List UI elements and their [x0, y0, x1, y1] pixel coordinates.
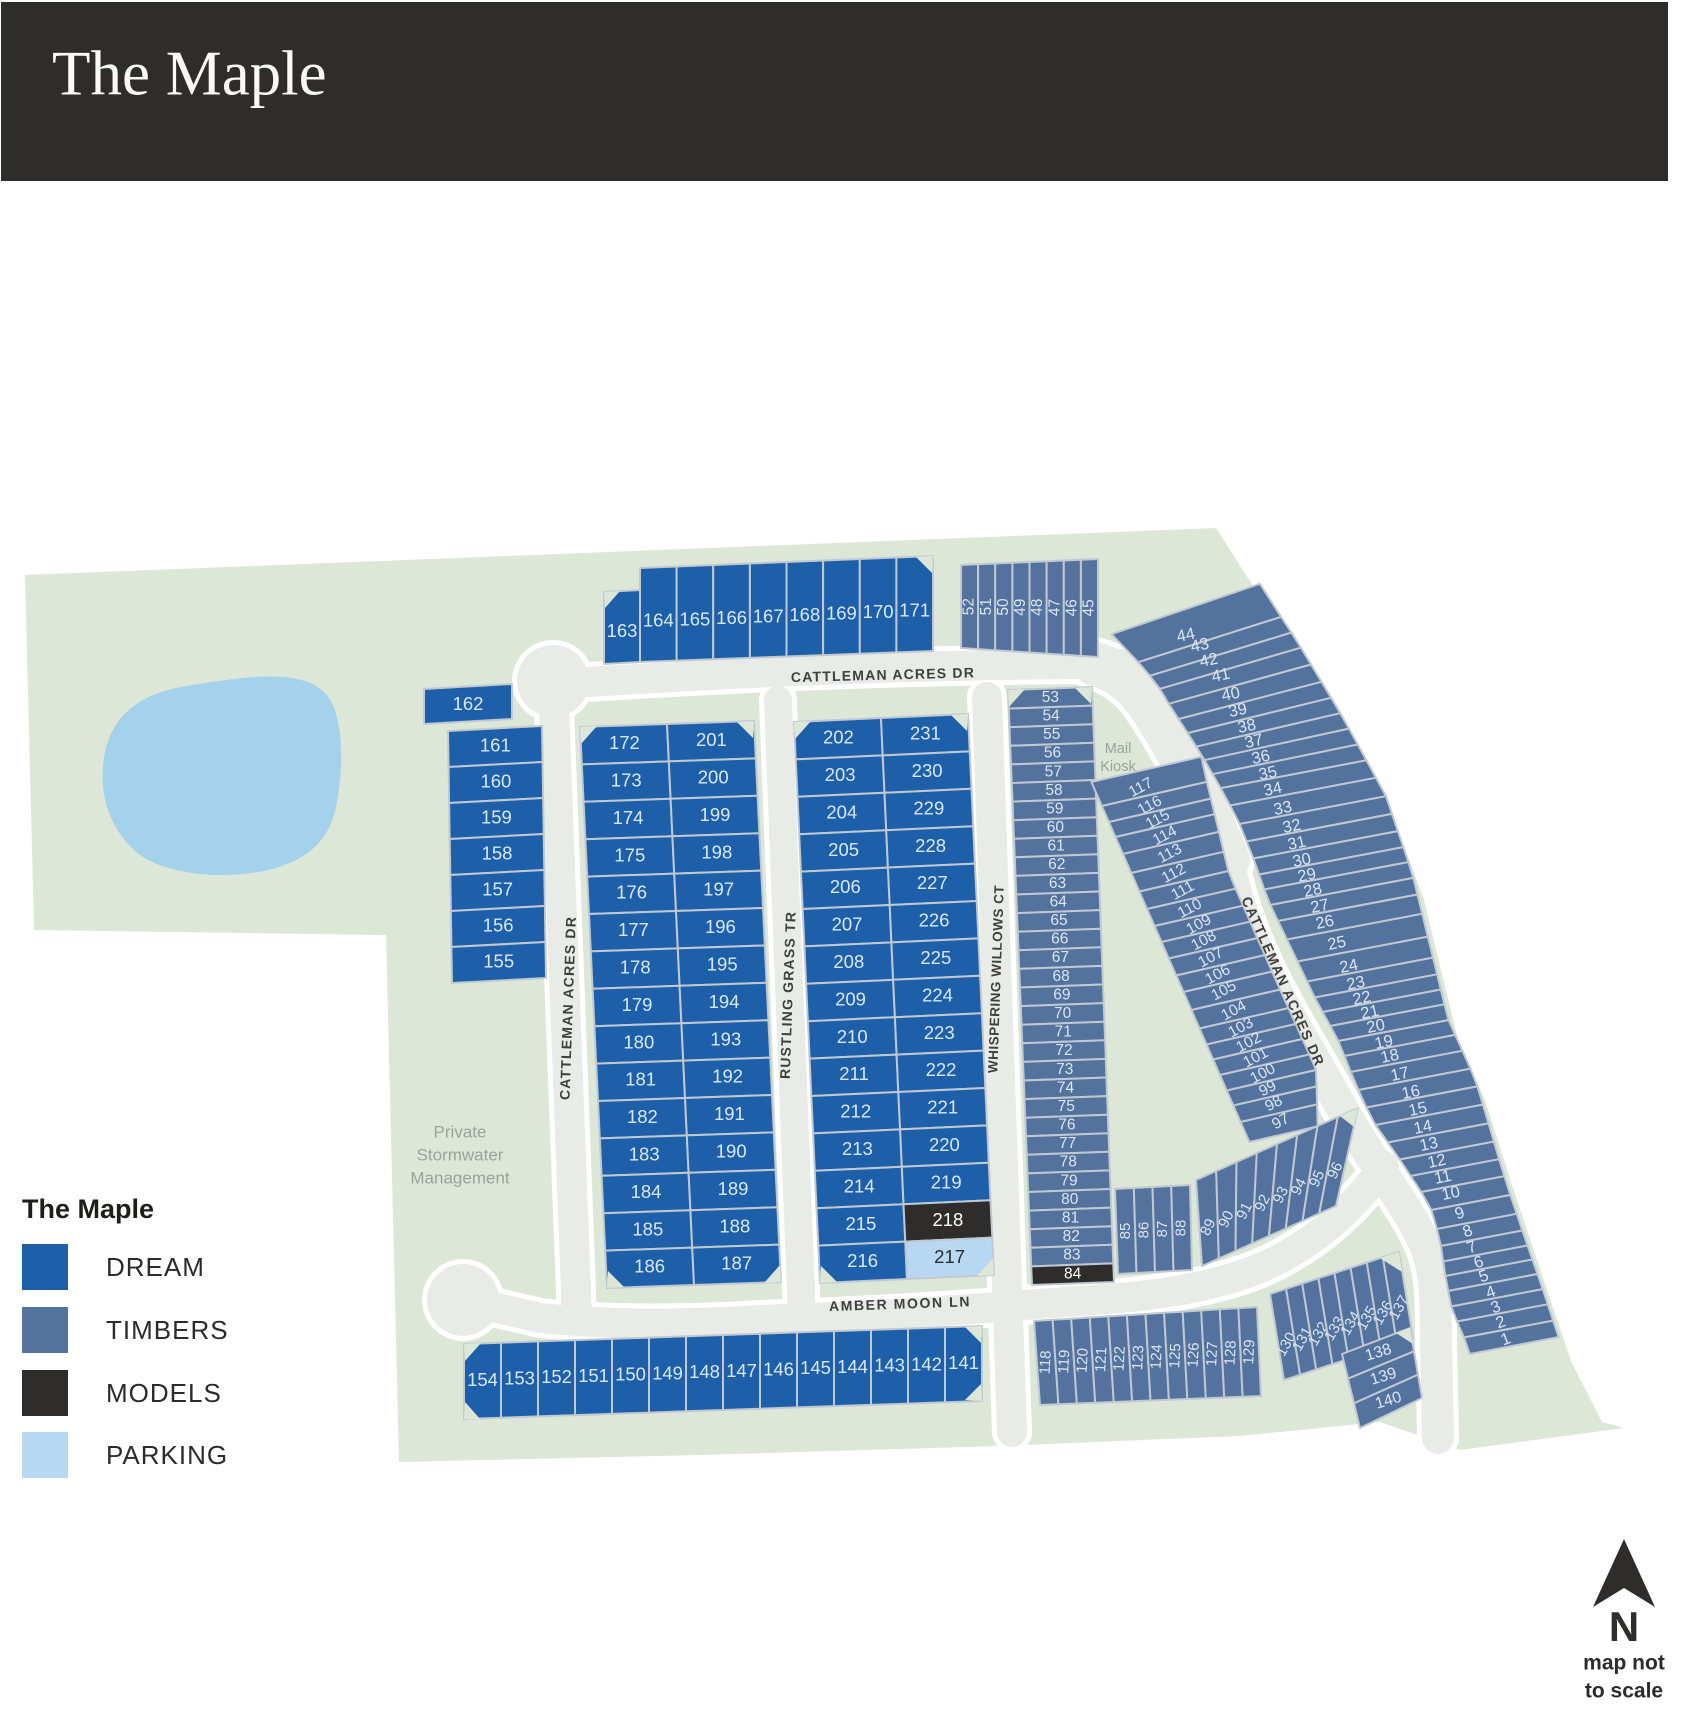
svg-text:195: 195 [707, 953, 738, 974]
svg-text:173: 173 [611, 769, 642, 790]
svg-text:196: 196 [705, 916, 736, 937]
svg-text:57: 57 [1045, 763, 1062, 780]
svg-text:214: 214 [844, 1175, 875, 1196]
svg-text:231: 231 [910, 723, 941, 744]
svg-text:171: 171 [899, 600, 930, 621]
svg-text:125: 125 [1166, 1343, 1184, 1369]
svg-text:78: 78 [1060, 1154, 1077, 1171]
svg-text:127: 127 [1203, 1341, 1221, 1367]
svg-text:45: 45 [1080, 599, 1097, 616]
svg-text:188: 188 [719, 1215, 750, 1236]
svg-text:58: 58 [1045, 782, 1062, 799]
svg-text:176: 176 [616, 882, 647, 903]
svg-text:178: 178 [620, 956, 651, 977]
svg-text:199: 199 [700, 804, 731, 825]
svg-text:75: 75 [1058, 1098, 1075, 1115]
svg-text:Management: Management [410, 1168, 510, 1187]
svg-text:212: 212 [840, 1101, 871, 1122]
svg-text:205: 205 [828, 839, 859, 860]
svg-text:DREAM: DREAM [106, 1252, 205, 1282]
svg-text:49: 49 [1012, 599, 1029, 616]
svg-text:80: 80 [1061, 1191, 1079, 1208]
svg-text:52: 52 [961, 598, 978, 615]
svg-text:47: 47 [1046, 599, 1063, 616]
svg-text:to scale: to scale [1585, 1680, 1663, 1703]
svg-text:177: 177 [618, 919, 649, 940]
svg-text:182: 182 [627, 1106, 658, 1127]
svg-text:The Maple: The Maple [22, 1194, 154, 1224]
svg-text:129: 129 [1240, 1339, 1258, 1365]
svg-text:86: 86 [1135, 1222, 1152, 1239]
svg-text:193: 193 [710, 1028, 741, 1049]
svg-text:25: 25 [1326, 933, 1348, 954]
svg-text:72: 72 [1055, 1042, 1072, 1059]
svg-text:122: 122 [1111, 1346, 1129, 1372]
svg-text:70: 70 [1054, 1005, 1072, 1022]
svg-text:69: 69 [1053, 986, 1070, 1003]
svg-text:208: 208 [833, 951, 864, 972]
svg-text:189: 189 [718, 1178, 749, 1199]
svg-text:204: 204 [826, 801, 857, 822]
svg-text:118: 118 [1037, 1350, 1055, 1375]
svg-text:179: 179 [622, 994, 653, 1015]
svg-text:203: 203 [825, 764, 856, 785]
svg-text:197: 197 [703, 879, 734, 900]
svg-text:Stormwater: Stormwater [417, 1145, 504, 1164]
svg-text:84: 84 [1064, 1265, 1082, 1282]
svg-text:222: 222 [926, 1059, 957, 1080]
svg-text:map not: map not [1583, 1652, 1665, 1675]
svg-text:184: 184 [631, 1181, 662, 1202]
svg-text:83: 83 [1063, 1247, 1080, 1264]
svg-text:77: 77 [1059, 1135, 1076, 1152]
svg-text:209: 209 [835, 988, 866, 1009]
svg-text:201: 201 [696, 729, 727, 750]
svg-text:143: 143 [874, 1355, 905, 1376]
svg-text:226: 226 [919, 910, 950, 931]
svg-text:65: 65 [1050, 912, 1067, 929]
svg-text:149: 149 [652, 1362, 683, 1383]
svg-text:198: 198 [701, 841, 732, 862]
svg-text:67: 67 [1052, 949, 1069, 966]
svg-text:162: 162 [453, 693, 484, 714]
svg-text:156: 156 [483, 914, 514, 935]
svg-text:10: 10 [1440, 1183, 1462, 1204]
svg-text:168: 168 [789, 604, 820, 625]
svg-text:183: 183 [629, 1143, 660, 1164]
svg-text:187: 187 [721, 1253, 752, 1274]
svg-text:218: 218 [932, 1209, 963, 1230]
svg-text:161: 161 [480, 734, 511, 755]
svg-text:141: 141 [948, 1352, 979, 1373]
svg-text:145: 145 [800, 1357, 831, 1378]
svg-text:221: 221 [927, 1097, 958, 1118]
svg-text:172: 172 [609, 732, 640, 753]
svg-text:185: 185 [632, 1218, 663, 1239]
svg-text:163: 163 [607, 620, 638, 641]
svg-text:87: 87 [1154, 1221, 1171, 1238]
svg-text:228: 228 [915, 835, 946, 856]
svg-text:158: 158 [482, 842, 513, 863]
svg-text:174: 174 [613, 807, 644, 828]
svg-text:217: 217 [934, 1246, 965, 1267]
svg-text:51: 51 [978, 598, 995, 615]
svg-text:148: 148 [689, 1361, 720, 1382]
svg-text:50: 50 [995, 598, 1012, 616]
svg-text:215: 215 [845, 1213, 876, 1234]
svg-text:230: 230 [912, 760, 943, 781]
svg-text:74: 74 [1057, 1079, 1075, 1096]
svg-text:128: 128 [1222, 1340, 1240, 1366]
svg-text:170: 170 [863, 601, 894, 622]
svg-text:180: 180 [623, 1031, 654, 1052]
svg-text:73: 73 [1056, 1061, 1073, 1078]
svg-text:164: 164 [643, 610, 674, 631]
svg-text:190: 190 [716, 1140, 747, 1161]
svg-text:160: 160 [480, 770, 511, 791]
svg-text:Private: Private [434, 1122, 487, 1141]
svg-text:167: 167 [753, 605, 784, 626]
svg-text:213: 213 [842, 1138, 873, 1159]
svg-text:76: 76 [1058, 1117, 1075, 1134]
svg-text:56: 56 [1044, 745, 1061, 762]
svg-text:85: 85 [1117, 1223, 1134, 1240]
svg-text:MODELS: MODELS [106, 1378, 222, 1408]
svg-text:192: 192 [712, 1066, 743, 1087]
svg-text:N: N [1609, 1603, 1639, 1650]
svg-text:120: 120 [1074, 1348, 1092, 1374]
svg-text:64: 64 [1050, 893, 1068, 910]
svg-text:46: 46 [1063, 599, 1080, 616]
svg-text:224: 224 [922, 984, 953, 1005]
svg-text:124: 124 [1148, 1344, 1166, 1370]
svg-text:169: 169 [826, 603, 857, 624]
svg-text:154: 154 [467, 1369, 498, 1390]
svg-text:227: 227 [917, 872, 948, 893]
svg-text:200: 200 [698, 766, 729, 787]
svg-text:142: 142 [911, 1353, 942, 1374]
svg-text:71: 71 [1055, 1024, 1072, 1041]
svg-text:41: 41 [1210, 665, 1232, 686]
svg-text:157: 157 [482, 878, 513, 899]
svg-text:175: 175 [614, 844, 645, 865]
svg-text:61: 61 [1047, 838, 1064, 855]
svg-text:152: 152 [541, 1366, 572, 1387]
svg-text:181: 181 [625, 1069, 656, 1090]
svg-text:81: 81 [1062, 1209, 1079, 1226]
svg-text:The Maple: The Maple [52, 38, 327, 108]
svg-text:54: 54 [1042, 707, 1060, 724]
svg-text:55: 55 [1043, 726, 1060, 743]
svg-text:211: 211 [839, 1063, 869, 1084]
svg-text:151: 151 [578, 1365, 609, 1386]
svg-text:153: 153 [504, 1367, 535, 1388]
svg-text:186: 186 [634, 1256, 665, 1277]
svg-text:144: 144 [837, 1356, 868, 1377]
svg-text:53: 53 [1042, 689, 1059, 706]
svg-text:82: 82 [1063, 1228, 1080, 1245]
svg-text:60: 60 [1047, 819, 1065, 836]
svg-text:123: 123 [1129, 1345, 1147, 1371]
svg-text:202: 202 [823, 727, 854, 748]
svg-text:150: 150 [615, 1364, 646, 1385]
svg-text:121: 121 [1092, 1347, 1110, 1373]
svg-text:126: 126 [1185, 1342, 1203, 1368]
svg-text:210: 210 [837, 1026, 868, 1047]
svg-text:66: 66 [1051, 931, 1068, 948]
svg-text:PARKING: PARKING [106, 1440, 228, 1470]
svg-text:207: 207 [832, 914, 863, 935]
svg-text:48: 48 [1029, 599, 1046, 616]
svg-text:166: 166 [716, 607, 747, 628]
svg-text:59: 59 [1046, 800, 1063, 817]
svg-text:229: 229 [913, 797, 944, 818]
svg-text:Mail: Mail [1105, 741, 1132, 757]
svg-text:206: 206 [830, 876, 861, 897]
svg-text:223: 223 [924, 1022, 955, 1043]
svg-text:63: 63 [1049, 875, 1066, 892]
svg-text:220: 220 [929, 1134, 960, 1155]
svg-text:155: 155 [483, 950, 514, 971]
svg-text:68: 68 [1052, 968, 1069, 985]
svg-text:147: 147 [726, 1360, 757, 1381]
svg-text:88: 88 [1173, 1220, 1190, 1237]
svg-text:191: 191 [714, 1103, 745, 1124]
svg-text:146: 146 [763, 1358, 794, 1379]
svg-text:119: 119 [1055, 1349, 1073, 1374]
svg-text:165: 165 [679, 608, 710, 629]
svg-text:62: 62 [1048, 856, 1065, 873]
svg-text:216: 216 [847, 1250, 878, 1271]
svg-text:225: 225 [920, 947, 951, 968]
svg-text:TIMBERS: TIMBERS [106, 1315, 229, 1345]
svg-text:219: 219 [931, 1171, 962, 1192]
svg-text:159: 159 [481, 806, 512, 827]
svg-text:79: 79 [1060, 1172, 1077, 1189]
svg-text:194: 194 [709, 991, 740, 1012]
